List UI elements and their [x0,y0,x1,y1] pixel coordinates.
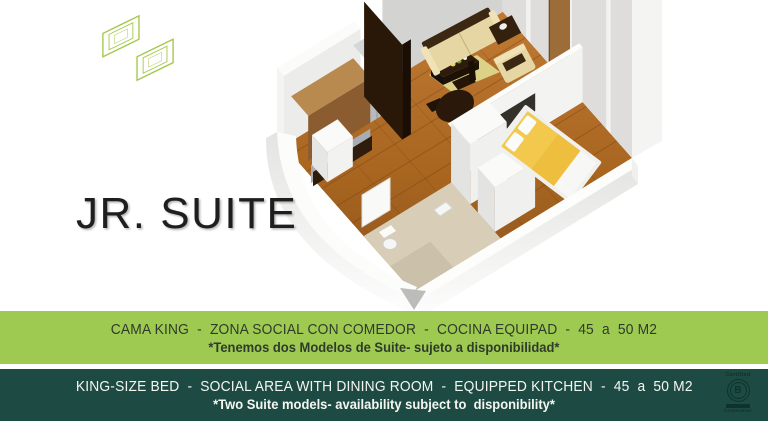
spanish-features-line: CAMA KING - ZONA SOCIAL CON COMEDOR - CO… [111,321,657,338]
english-info-band: KING-SIZE BED - SOCIAL AREA WITH DINING … [0,369,768,421]
cert-letter: B [730,382,747,399]
cert-bottom-label: Corporation [724,409,752,414]
spanish-disclaimer-line: *Tenemos dos Modelos de Suite- sujeto a … [208,340,559,355]
page-title: JR. SUITE [76,189,297,239]
english-features-line: KING-SIZE BED - SOCIAL AREA WITH DINING … [76,378,693,395]
cert-top-label: Certified [725,372,750,378]
english-disclaimer-line: *Two Suite models- availability subject … [213,397,555,412]
wall-stud [606,0,611,134]
logo-outlines [103,16,173,80]
wall-stud [526,0,531,43]
spanish-info-band: CAMA KING - ZONA SOCIAL CON COMEDOR - CO… [0,311,768,364]
suite-marketing-slide: JR. SUITE CAMA KING - ZONA SOCIAL CON CO… [0,0,768,421]
b-corp-certification-mark: Certified B Corporation [716,372,760,413]
hotel-logo [99,13,177,85]
b-corp-circle-icon: B [727,379,750,402]
